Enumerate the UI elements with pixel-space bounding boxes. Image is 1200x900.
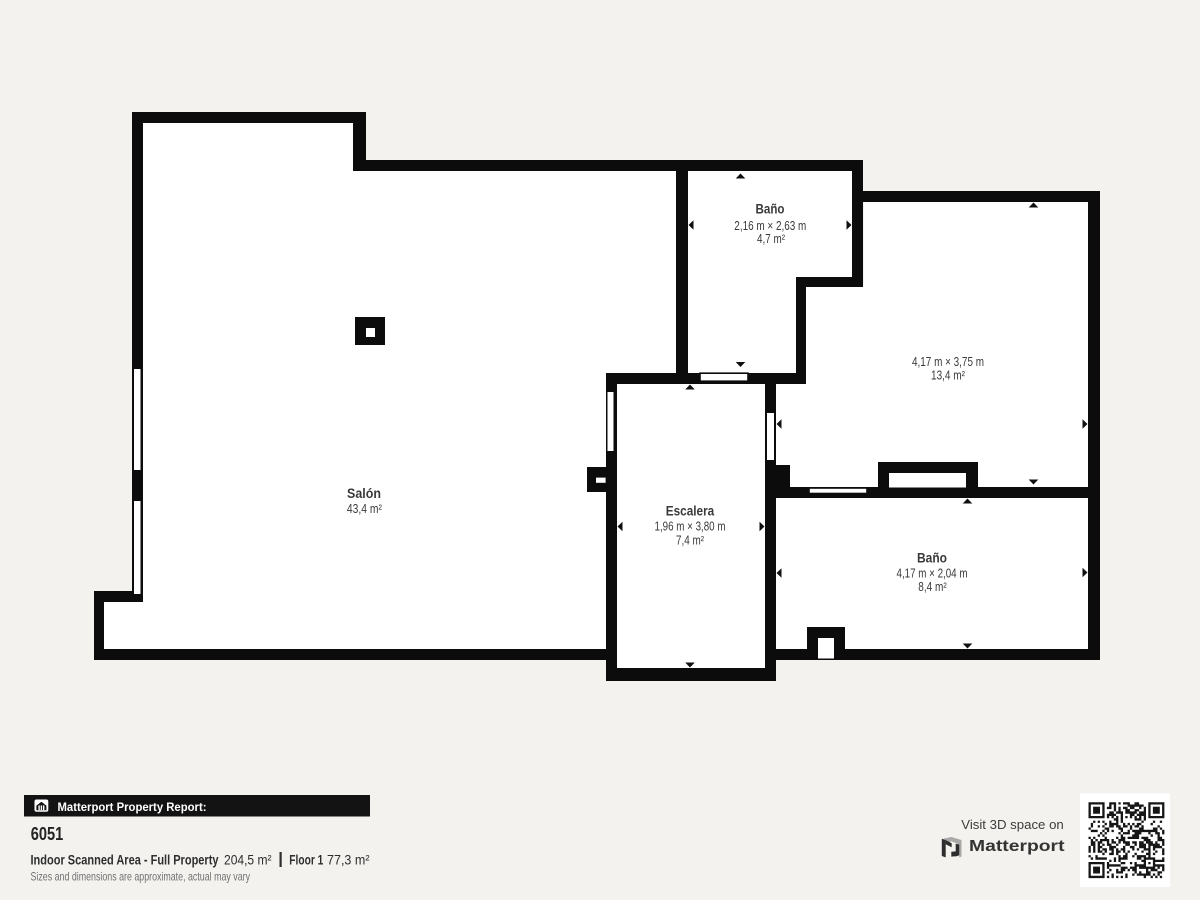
svg-text:77,3 m²: 77,3 m² [327,853,370,868]
svg-text:Baño: Baño [917,551,947,566]
svg-text:Baño: Baño [756,201,785,216]
svg-text:Matterport: Matterport [969,838,1065,855]
svg-text:13,4 m²: 13,4 m² [931,369,965,383]
svg-text:8,4 m²: 8,4 m² [918,580,947,594]
svg-text:2,16 m × 2,63 m: 2,16 m × 2,63 m [734,219,806,233]
svg-text:4,17 m × 2,04 m: 4,17 m × 2,04 m [897,567,968,581]
svg-text:Visit 3D space on: Visit 3D space on [961,818,1064,832]
svg-text:Floor 1: Floor 1 [289,853,323,868]
svg-text:4,7 m²: 4,7 m² [757,232,785,246]
svg-text:Sizes and dimensions are appro: Sizes and dimensions are approximate, ac… [31,870,251,884]
svg-text:Matterport Property Report:: Matterport Property Report: [58,800,207,814]
svg-text:1,96 m × 3,80 m: 1,96 m × 3,80 m [655,520,726,534]
svg-text:Escalera: Escalera [666,504,715,519]
svg-text:Indoor Scanned Area - Full Pro: Indoor Scanned Area - Full Property [31,853,219,868]
svg-text:6051: 6051 [31,824,64,844]
svg-text:7,4 m²: 7,4 m² [676,534,704,548]
svg-text:4,17 m × 3,75 m: 4,17 m × 3,75 m [912,355,984,369]
svg-text:204,5 m²: 204,5 m² [224,853,272,868]
svg-text:Salón: Salón [347,486,381,501]
svg-text:43,4 m²: 43,4 m² [347,502,382,516]
